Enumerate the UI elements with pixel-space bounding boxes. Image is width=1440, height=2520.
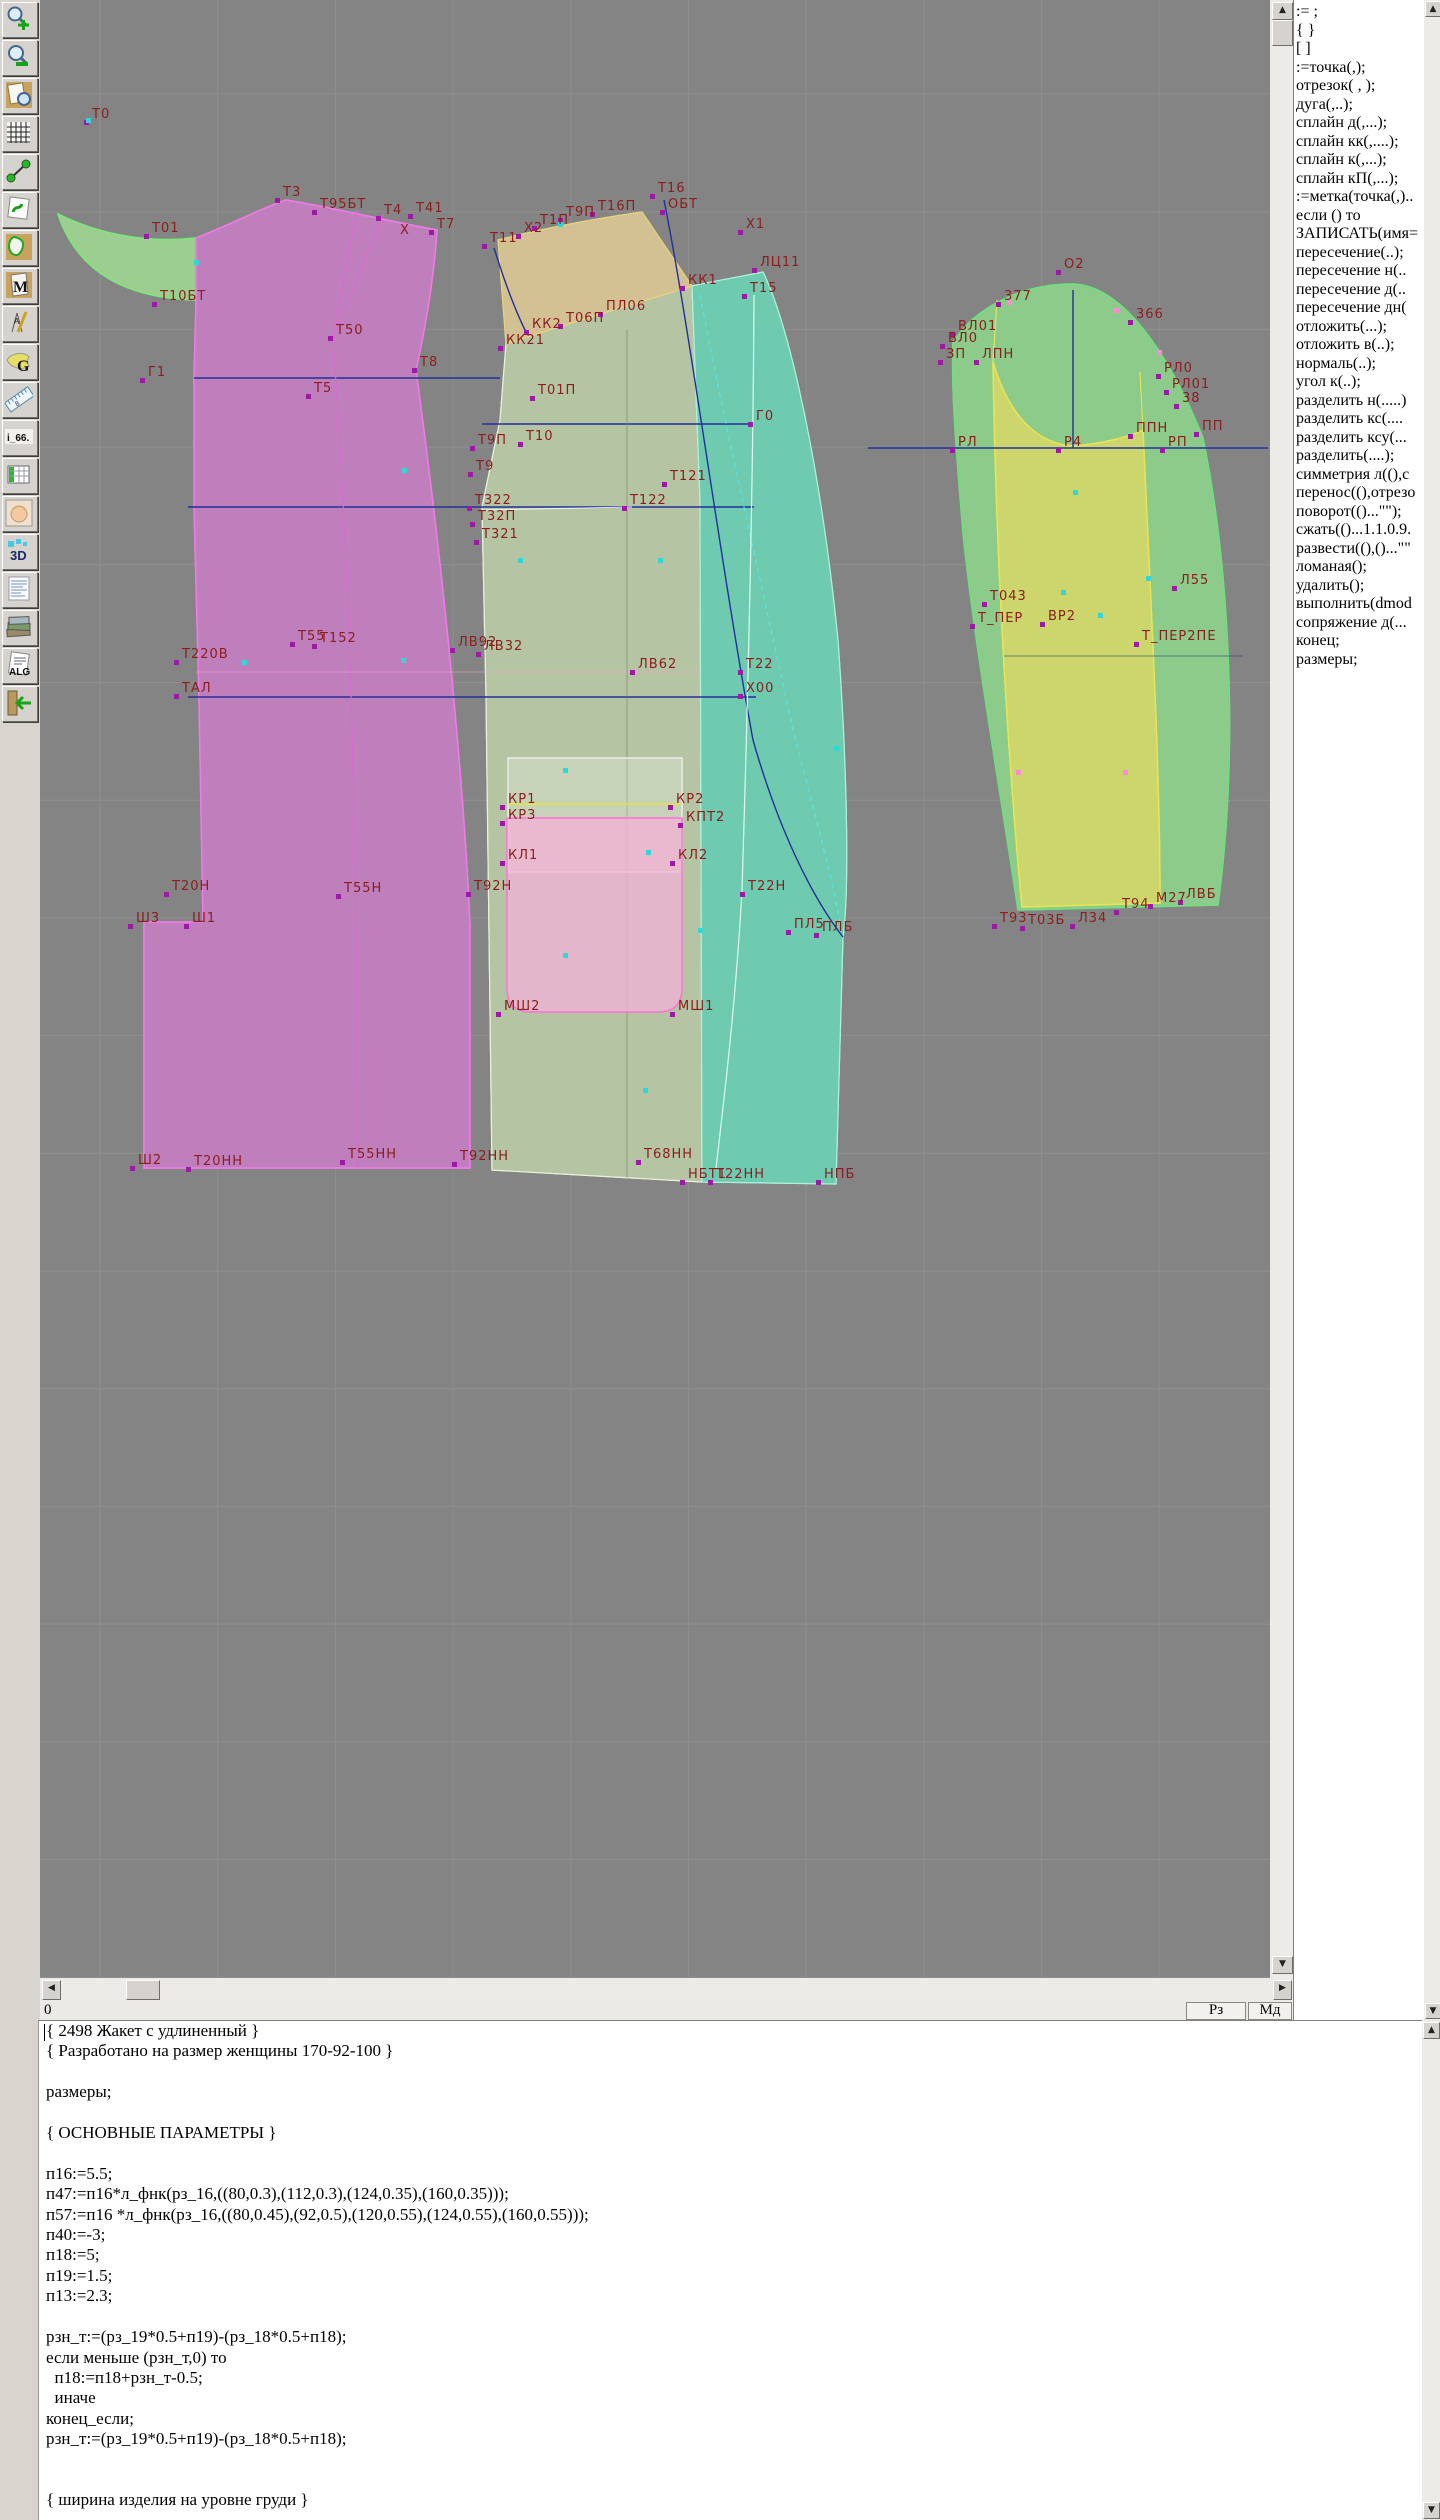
vscroll-thumb[interactable] (1272, 20, 1293, 46)
pattern-point (470, 522, 475, 527)
sketch-page-icon (5, 195, 33, 223)
model-mode-button[interactable]: Мд (1248, 2002, 1292, 2020)
pattern-point (1070, 924, 1075, 929)
document-list-icon (5, 575, 33, 603)
sketch-button[interactable] (2, 192, 38, 228)
point-label: Т92Н (473, 879, 512, 894)
editor-line: { ширина изделия на уровне груди } (39, 2490, 1423, 2510)
pattern-point (996, 302, 1001, 307)
pattern-point (476, 652, 481, 657)
point-label: Т5 (313, 381, 332, 396)
editor-line: п18:=5; (39, 2245, 1423, 2265)
pattern-point (496, 1012, 501, 1017)
zoom-in-icon (5, 5, 33, 33)
command-list-item[interactable]: перенос((),отрезо (1296, 484, 1422, 503)
print-preview-button[interactable] (2, 78, 38, 114)
point-label: Т_ПЕР (977, 611, 1023, 626)
scroll-up-icon[interactable]: ▲ (1423, 2022, 1440, 2039)
point-label: Г0 (756, 409, 774, 424)
editor-line (39, 2470, 1423, 2490)
pattern-point (1114, 910, 1119, 915)
pattern-point (738, 230, 743, 235)
pattern-piece-button[interactable] (2, 230, 38, 266)
pattern-point (786, 930, 791, 935)
scroll-up-icon[interactable]: ▲ (1425, 1, 1440, 17)
pattern-point (1056, 448, 1061, 453)
command-list-item[interactable]: сплайн д(,...); (1296, 114, 1422, 133)
point-label: Т94 (1121, 897, 1149, 912)
command-list-item[interactable]: сжать(()...1.1.0.9. (1296, 521, 1422, 540)
pattern-point (678, 823, 683, 828)
command-list-item[interactable]: разделить кс(.... (1296, 410, 1422, 429)
pattern-point (970, 624, 975, 629)
editor-line: рзн_т:=(рз_19*0.5+п19)-(рз_18*0.5+п18); (39, 2327, 1423, 2347)
pattern-point (668, 805, 673, 810)
pattern-point (144, 234, 149, 239)
pattern-point (306, 394, 311, 399)
scroll-down-icon[interactable]: ▼ (1272, 1956, 1293, 1974)
pattern-point (152, 302, 157, 307)
editor-line (39, 2307, 1423, 2327)
command-list-item[interactable]: :=метка(точка(,).. (1296, 188, 1422, 207)
canvas-hscrollbar[interactable]: ◀ ▶ (40, 1978, 1293, 2002)
pattern-point (468, 472, 473, 477)
pattern-point (982, 602, 987, 607)
pattern-point (1098, 613, 1103, 618)
table-icon (5, 461, 33, 489)
point-label: Т_ПЕР2ПЕ (1141, 629, 1217, 644)
point-label: Т50 (335, 323, 363, 338)
pattern-point (1156, 374, 1161, 379)
point-label: Т9 (475, 459, 494, 474)
svg-text:G: G (17, 358, 30, 375)
pattern-point (1134, 642, 1139, 647)
pattern-point (834, 746, 839, 751)
pattern-point (658, 558, 663, 563)
command-list-item[interactable]: конец; (1296, 632, 1422, 651)
pattern-point (376, 216, 381, 221)
point-label: КК21 (506, 333, 545, 348)
pattern-point (816, 1180, 821, 1185)
pattern-point (312, 210, 317, 215)
exit-door-icon (5, 689, 33, 717)
command-list-item[interactable]: удалить(); (1296, 577, 1422, 596)
pattern-point (1164, 390, 1169, 395)
pattern-point (974, 360, 979, 365)
i66-button[interactable]: i_66. (2, 420, 38, 456)
point-label: Х00 (746, 681, 774, 696)
point-label: МШ1 (678, 999, 714, 1014)
command-list-item[interactable]: выполнить(dmod (1296, 595, 1422, 614)
scroll-left-icon[interactable]: ◀ (42, 1980, 61, 2000)
point-label: ЛПН (982, 347, 1014, 362)
pattern-m-icon: M (5, 271, 33, 299)
command-list-item[interactable]: пересечение дн( (1296, 299, 1422, 318)
pattern-point (1123, 770, 1128, 775)
pattern-point (164, 892, 169, 897)
editor-line: рзн_т:=(рз_19*0.5+п19)-(рз_18*0.5+п18); (39, 2429, 1423, 2449)
pattern-point (950, 448, 955, 453)
command-list-item[interactable]: сплайн кк(,....); (1296, 133, 1422, 152)
point-label: Т10 (525, 429, 553, 444)
pattern-point (698, 928, 703, 933)
pattern-point (670, 861, 675, 866)
point-label: ТАЛ (181, 681, 212, 696)
point-label: Г1 (148, 365, 166, 380)
pattern-point (474, 540, 479, 545)
document-list-button[interactable] (2, 572, 38, 608)
point-label: Т8 (419, 355, 438, 370)
point-label: Т9П (565, 205, 595, 220)
pattern-drawing: Т0Т3Т95БТТ4Т41ХТ7Т01Т10БТТ50Т8Т5Г1Т11Х2Т… (40, 0, 1270, 1978)
command-list-item[interactable]: сопряжение д(... (1296, 614, 1422, 633)
print-preview-icon (5, 81, 33, 109)
scroll-down-icon[interactable]: ▼ (1425, 2003, 1440, 2019)
pattern-point (470, 446, 475, 451)
pattern-canvas[interactable]: Т0Т3Т95БТТ4Т41ХТ7Т01Т10БТТ50Т8Т5Г1Т11Х2Т… (40, 0, 1270, 1978)
exit-button[interactable] (2, 686, 38, 722)
pattern-point (412, 368, 417, 373)
point-label: ЛВ32 (484, 639, 523, 654)
threed-button[interactable]: 3D (2, 534, 38, 570)
point-label: 377 (1004, 289, 1032, 304)
point-label: ОБТ (668, 197, 698, 212)
algorithm-editor[interactable]: { 2498 Жакет с удлиненный }{ Разработано… (38, 2020, 1423, 2520)
point-label: ЗП (946, 347, 966, 362)
pattern-point (740, 892, 745, 897)
grid-icon (5, 119, 33, 147)
left-toolbar: M A G 8 i_66. 3D ALG (0, 0, 41, 2520)
point-label: М27 (1156, 891, 1187, 906)
point-label: Л34 (1078, 911, 1107, 926)
pattern-point (1174, 404, 1179, 409)
point-label: Т121 (669, 469, 707, 484)
point-label: КР1 (508, 792, 536, 807)
pattern-point (650, 194, 655, 199)
editor-line (39, 2103, 1423, 2123)
point-label: Т15 (749, 281, 777, 296)
point-label: Т043 (989, 589, 1027, 604)
pattern-point (340, 1160, 345, 1165)
pattern-point (128, 924, 133, 929)
pattern-point (742, 294, 747, 299)
pattern-point (646, 850, 651, 855)
command-list-item[interactable]: размеры; (1296, 651, 1422, 670)
editor-line (39, 2450, 1423, 2470)
pattern-point (636, 1160, 641, 1165)
svg-text:i_66.: i_66. (7, 433, 29, 444)
pattern-point (336, 894, 341, 899)
point-label: Ш1 (192, 911, 216, 926)
pattern-point (738, 694, 743, 699)
size-table-button[interactable] (2, 458, 38, 494)
point-label: ЛЦ11 (760, 255, 800, 270)
drafting-tools-button[interactable]: A (2, 306, 38, 342)
pattern-point (174, 694, 179, 699)
command-list-item[interactable]: отложить(...); (1296, 318, 1422, 337)
model-photo-icon (5, 499, 33, 527)
pattern-point (482, 244, 487, 249)
text-caret (44, 2024, 45, 2041)
pattern-point (1073, 490, 1078, 495)
pattern-point (563, 953, 568, 958)
command-list-item[interactable]: :=точка(,); (1296, 59, 1422, 78)
point-label: ППН (1136, 421, 1168, 436)
zoom-out-button[interactable] (2, 40, 38, 76)
drafting-tools-icon: A (5, 309, 33, 337)
point-label: КЛ1 (508, 848, 538, 863)
editor-line (39, 2062, 1423, 2082)
pattern-point (328, 336, 333, 341)
point-label: ПЛБ (822, 920, 853, 935)
point-label: Т22Н (747, 879, 786, 894)
point-label: Т220В (181, 647, 229, 662)
algorithm-button[interactable]: ALG (2, 648, 38, 684)
pattern-point (748, 422, 753, 427)
pattern-point (500, 821, 505, 826)
zoom-in-button[interactable] (2, 2, 38, 38)
graphics-g-icon: G (5, 347, 33, 375)
command-list-item[interactable]: отложить в(..); (1296, 336, 1422, 355)
pattern-point (660, 210, 665, 215)
point-label: Т03Б (1027, 913, 1065, 928)
command-panel-scrollbar[interactable]: ▲ ▼ (1424, 0, 1440, 2020)
status-bar: 0 Рз Мд (40, 2002, 1293, 2020)
point-label: О2 (1064, 257, 1085, 272)
editor-line: п47:=п16*л_фнк(рз_16,((80,0.3),(112,0.3)… (39, 2184, 1423, 2204)
measure-line-icon (5, 157, 33, 185)
status-coordinate: 0 (44, 2002, 52, 2019)
command-list-item[interactable]: := ; (1296, 3, 1422, 22)
svg-text:ALG: ALG (9, 667, 30, 678)
graphics-g-button[interactable]: G (2, 344, 38, 380)
pattern-point (518, 442, 523, 447)
pattern-point (1157, 350, 1162, 355)
point-label: Т92НН (459, 1149, 509, 1164)
pattern-point (938, 360, 943, 365)
point-label: Т20НН (193, 1154, 243, 1169)
point-label: Т22НН (715, 1167, 765, 1182)
pattern-point (429, 230, 434, 235)
pattern-point (1016, 770, 1021, 775)
model-photo-button[interactable] (2, 496, 38, 532)
pattern-point (312, 644, 317, 649)
measure-button[interactable] (2, 154, 38, 190)
point-label: Т11 (489, 231, 517, 246)
pattern-point (184, 924, 189, 929)
command-list-item[interactable]: сплайн к(,...); (1296, 151, 1422, 170)
pattern-point (814, 933, 819, 938)
pattern-point (752, 268, 757, 273)
point-label: ПЛ06 (606, 299, 646, 314)
scroll-up-icon[interactable]: ▲ (1272, 2, 1293, 20)
razrabotka-mode-button[interactable]: Рз (1186, 2002, 1246, 2020)
point-label: ВЛ0 (948, 331, 978, 346)
point-label: Л55 (1180, 573, 1209, 588)
pattern-point (1061, 590, 1066, 595)
ruler-button[interactable]: 8 (2, 382, 38, 418)
command-list-item[interactable]: разделить н(.....) (1296, 392, 1422, 411)
point-label: Ш2 (138, 1153, 162, 1168)
pattern-point (670, 1012, 675, 1017)
command-list-item[interactable]: отрезок( , ); (1296, 77, 1422, 96)
point-label: Т22 (745, 657, 773, 672)
command-list-item[interactable]: [ ] (1296, 40, 1422, 59)
pattern-m-button[interactable]: M (2, 268, 38, 304)
point-label: МШ2 (504, 999, 540, 1014)
point-label: Т122 (629, 493, 667, 508)
command-list-item[interactable]: ЗАПИСАТЬ(имя= (1296, 225, 1422, 244)
editor-line: п40:=-3; (39, 2225, 1423, 2245)
pattern-point (500, 861, 505, 866)
command-list-item[interactable]: пересечение(..); (1296, 244, 1422, 263)
pattern-point (1146, 576, 1151, 581)
point-label: КЛ2 (678, 848, 708, 863)
point-label: Т06П (565, 311, 604, 326)
pattern-point (622, 506, 627, 511)
editor-line (39, 2143, 1423, 2163)
pattern-point (86, 118, 91, 123)
point-label: Т322 (474, 493, 512, 508)
command-list-item[interactable]: поворот(()...""); (1296, 503, 1422, 522)
alg-icon: ALG (5, 651, 33, 679)
command-list-item[interactable]: сплайн кП(,...); (1296, 170, 1422, 189)
pattern-point (402, 468, 407, 473)
point-label: Т41 (415, 201, 443, 216)
pattern-point (401, 658, 406, 663)
ruler-icon: 8 (5, 385, 33, 413)
point-label: Т4 (383, 203, 402, 218)
point-label: Т55Н (343, 881, 382, 896)
command-list-item[interactable]: пересечение н(.. (1296, 262, 1422, 281)
point-label: Т0 (91, 107, 110, 122)
svg-text:A: A (14, 317, 20, 326)
point-label: Т152 (319, 631, 357, 646)
editor-line: иначе (39, 2388, 1423, 2408)
pattern-point (174, 660, 179, 665)
pattern-point (643, 1088, 648, 1093)
point-label: ПЛ5 (794, 917, 825, 932)
point-label: Т93 (999, 911, 1027, 926)
pattern-point (530, 396, 535, 401)
point-label: Т9П (477, 433, 507, 448)
canvas-vscrollbar[interactable]: ▲ ▼ (1270, 0, 1293, 1978)
command-list-item[interactable]: пересечение д(.. (1296, 281, 1422, 300)
pattern-point (408, 214, 413, 219)
point-label: Х (400, 223, 410, 238)
point-label: ПП (1202, 419, 1224, 434)
editor-line: { 2498 Жакет с удлиненный } (39, 2021, 1423, 2041)
grid-button[interactable] (2, 116, 38, 152)
point-label: Т10БТ (159, 289, 206, 304)
point-label: Т55НН (347, 1147, 397, 1162)
point-label: РП (1168, 435, 1188, 450)
pattern-point (498, 346, 503, 351)
command-list-item[interactable]: угол к(..); (1296, 373, 1422, 392)
threed-icon: 3D (5, 537, 33, 565)
point-label: РЛ01 (1172, 377, 1210, 392)
pattern-point (992, 924, 997, 929)
pattern-point (738, 670, 743, 675)
editor-line: { ОСНОВНЫЕ ПАРАМЕТРЫ } (39, 2123, 1423, 2143)
i66-icon: i_66. (5, 423, 33, 451)
point-label: Т16П (597, 199, 636, 214)
editor-scrollbar[interactable]: ▲ ▼ (1422, 2020, 1440, 2520)
point-label: Т321 (481, 527, 519, 542)
books-icon (5, 613, 33, 641)
editor-line: п16:=5.5; (39, 2164, 1423, 2184)
point-label: КР2 (676, 792, 704, 807)
scroll-right-icon[interactable]: ▶ (1273, 1980, 1292, 2000)
command-list-item[interactable]: нормаль(..); (1296, 355, 1422, 374)
pattern-point (130, 1166, 135, 1171)
point-label: ЛВ62 (638, 657, 677, 672)
pattern-point (1056, 270, 1061, 275)
point-label: Т95БТ (319, 197, 366, 212)
pattern-point (194, 260, 199, 265)
pattern-point (1040, 622, 1045, 627)
editor-line: { Разработано на размер женщины 170-92-1… (39, 2041, 1423, 2061)
pattern-point (1020, 926, 1025, 931)
point-label: КК2 (532, 317, 562, 332)
point-label: Т16 (657, 181, 685, 196)
point-label: Т32П (477, 509, 516, 524)
editor-line: п18:=п18+рзн_т-0.5; (39, 2368, 1423, 2388)
command-list: := ;{ }[ ]:=точка(,);отрезок( , );дуга(,… (1296, 3, 1422, 2017)
command-list-item[interactable]: симметрия л((),с (1296, 466, 1422, 485)
command-panel: := ;{ }[ ]:=точка(,);отрезок( , );дуга(,… (1293, 0, 1440, 2020)
editor-line: размеры; (39, 2082, 1423, 2102)
command-list-item[interactable]: разделить ксу(... (1296, 429, 1422, 448)
point-label: КПТ2 (686, 810, 725, 825)
zoom-out-icon (5, 43, 33, 71)
svg-text:M: M (13, 279, 28, 296)
pattern-point (680, 1180, 685, 1185)
pattern-point (140, 378, 145, 383)
command-list-item[interactable]: ломаная(); (1296, 558, 1422, 577)
side-mesh (482, 286, 702, 1182)
command-list-item[interactable]: разделить(....); (1296, 447, 1422, 466)
pattern-point (1128, 320, 1133, 325)
point-label: ВР2 (1048, 609, 1076, 624)
pattern-point (466, 892, 471, 897)
pattern-point (518, 558, 523, 563)
pattern-point (680, 286, 685, 291)
editor-line: если меньше (рзн_т,0) то (39, 2348, 1423, 2368)
command-list-item[interactable]: развести((),()..."" (1296, 540, 1422, 559)
point-label: РЛ0 (1164, 361, 1193, 376)
point-label: Т68НН (643, 1147, 693, 1162)
point-label: 38 (1182, 391, 1201, 406)
pattern-point (1114, 308, 1119, 313)
point-label: Х1 (746, 217, 765, 232)
pattern-point (500, 805, 505, 810)
point-label: Р4 (1064, 435, 1082, 450)
pattern-point (275, 198, 280, 203)
pattern-point (452, 1162, 457, 1167)
command-list-item[interactable]: дуга(,..); (1296, 96, 1422, 115)
pattern-point (662, 482, 667, 487)
editor-line: п13:=2.3; (39, 2286, 1423, 2306)
hscroll-thumb[interactable] (126, 1980, 160, 2000)
point-label: Т1П (539, 213, 569, 228)
command-list-item[interactable]: { } (1296, 22, 1422, 41)
pattern-point (290, 642, 295, 647)
command-list-item[interactable]: если () то (1296, 207, 1422, 226)
scroll-down-icon[interactable]: ▼ (1423, 2502, 1440, 2519)
point-label: РЛ (958, 435, 978, 450)
library-button[interactable] (2, 610, 38, 646)
